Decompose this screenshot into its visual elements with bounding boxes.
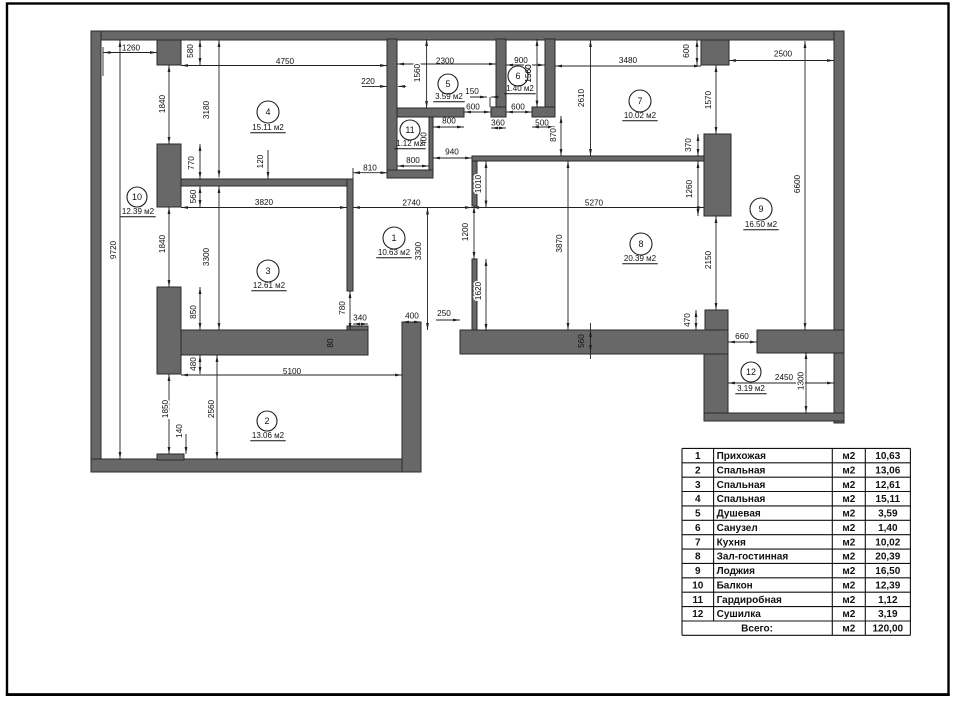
svg-text:2: 2: [264, 416, 269, 426]
svg-text:8: 8: [638, 239, 643, 249]
svg-text:360: 360: [491, 119, 505, 128]
svg-text:340: 340: [353, 314, 367, 323]
svg-text:3300: 3300: [414, 241, 423, 260]
svg-text:1.12 м2: 1.12 м2: [396, 139, 424, 148]
svg-text:м2: м2: [842, 624, 855, 635]
svg-text:580: 580: [186, 44, 195, 58]
svg-text:10.63 м2: 10.63 м2: [378, 248, 411, 257]
svg-text:500: 500: [535, 119, 549, 128]
svg-text:4750: 4750: [276, 57, 295, 66]
svg-text:15,11: 15,11: [876, 494, 901, 505]
svg-text:Душевая: Душевая: [717, 509, 761, 520]
svg-text:Спальная: Спальная: [717, 480, 766, 491]
svg-text:7: 7: [695, 537, 701, 548]
svg-text:Прихожая: Прихожая: [717, 451, 767, 462]
svg-text:5270: 5270: [585, 199, 604, 208]
svg-text:470: 470: [683, 313, 692, 327]
svg-text:3,59: 3,59: [878, 509, 898, 520]
svg-text:370: 370: [684, 138, 693, 152]
svg-text:770: 770: [187, 156, 196, 170]
svg-text:120,00: 120,00: [873, 624, 904, 635]
svg-text:Всего:: Всего:: [741, 624, 773, 635]
svg-text:Балкон: Балкон: [717, 580, 753, 591]
svg-text:1300: 1300: [797, 371, 806, 390]
svg-text:1,12: 1,12: [878, 595, 898, 606]
svg-text:м2: м2: [842, 566, 855, 577]
svg-text:5: 5: [695, 509, 701, 520]
svg-text:9720: 9720: [109, 240, 118, 259]
svg-text:4: 4: [265, 107, 270, 117]
svg-text:м2: м2: [842, 494, 855, 505]
svg-text:3480: 3480: [619, 56, 638, 65]
svg-text:Спальная: Спальная: [717, 494, 766, 505]
svg-text:8: 8: [695, 552, 701, 563]
svg-text:870: 870: [549, 128, 558, 142]
svg-text:800: 800: [442, 117, 456, 126]
svg-text:1.40 м2: 1.40 м2: [506, 84, 534, 93]
svg-text:м2: м2: [842, 609, 855, 620]
svg-text:13.06 м2: 13.06 м2: [252, 431, 285, 440]
svg-text:3300: 3300: [202, 247, 211, 266]
svg-text:м2: м2: [842, 537, 855, 548]
svg-text:Спальная: Спальная: [717, 465, 766, 476]
svg-text:12: 12: [746, 367, 756, 377]
svg-text:850: 850: [189, 305, 198, 319]
svg-text:660: 660: [735, 332, 749, 341]
svg-text:6: 6: [515, 71, 520, 81]
svg-text:12: 12: [692, 609, 704, 620]
svg-text:1200: 1200: [461, 222, 470, 241]
svg-text:Гардиробная: Гардиробная: [717, 594, 782, 606]
svg-text:5100: 5100: [283, 367, 302, 376]
svg-text:1570: 1570: [704, 90, 713, 109]
svg-text:10,63: 10,63: [875, 451, 900, 462]
svg-text:600: 600: [682, 44, 691, 58]
svg-text:600: 600: [466, 103, 480, 112]
svg-text:1560: 1560: [524, 64, 533, 83]
svg-text:3: 3: [695, 480, 701, 491]
svg-text:м2: м2: [842, 480, 855, 491]
svg-text:3180: 3180: [202, 100, 211, 119]
svg-text:2740: 2740: [402, 199, 421, 208]
svg-text:1620: 1620: [474, 281, 483, 300]
svg-text:2450: 2450: [775, 373, 794, 382]
svg-text:2150: 2150: [704, 250, 713, 269]
svg-text:140: 140: [175, 424, 184, 438]
svg-text:400: 400: [405, 312, 419, 321]
svg-text:810: 810: [363, 164, 377, 173]
svg-text:м2: м2: [842, 523, 855, 534]
svg-text:м2: м2: [842, 580, 855, 591]
svg-text:Кухня: Кухня: [717, 537, 746, 548]
svg-text:560: 560: [189, 189, 198, 203]
svg-text:480: 480: [189, 357, 198, 371]
svg-text:м2: м2: [842, 451, 855, 462]
svg-text:20.39 м2: 20.39 м2: [624, 254, 657, 263]
svg-text:1840: 1840: [158, 234, 167, 253]
svg-text:780: 780: [338, 301, 347, 315]
svg-text:6: 6: [695, 523, 701, 534]
svg-text:9: 9: [695, 566, 701, 577]
svg-text:5: 5: [445, 79, 450, 89]
svg-text:1560: 1560: [413, 63, 422, 82]
svg-text:220: 220: [361, 77, 375, 86]
svg-text:900: 900: [514, 56, 528, 65]
svg-text:15.11 м2: 15.11 м2: [252, 123, 284, 132]
svg-text:1260: 1260: [685, 179, 694, 198]
svg-text:1: 1: [695, 451, 701, 462]
svg-text:1,40: 1,40: [878, 523, 898, 534]
svg-text:м2: м2: [842, 552, 855, 563]
svg-text:10,02: 10,02: [875, 537, 900, 548]
svg-text:150: 150: [465, 87, 479, 96]
svg-text:120: 120: [256, 154, 265, 168]
svg-text:560: 560: [577, 334, 586, 348]
svg-text:3,19: 3,19: [878, 609, 898, 620]
svg-text:12,61: 12,61: [875, 480, 900, 491]
svg-text:9: 9: [758, 204, 763, 214]
svg-text:м2: м2: [842, 509, 855, 520]
svg-text:12.61 м2: 12.61 м2: [253, 281, 286, 290]
svg-text:80: 80: [326, 338, 335, 348]
svg-text:20,39: 20,39: [875, 552, 900, 563]
svg-text:Сушилка: Сушилка: [717, 609, 762, 620]
svg-text:4: 4: [695, 494, 701, 505]
svg-text:1260: 1260: [122, 44, 141, 53]
svg-text:1840: 1840: [158, 94, 167, 113]
svg-text:1850: 1850: [161, 399, 170, 418]
svg-text:Санузел: Санузел: [717, 523, 758, 534]
svg-text:3820: 3820: [255, 198, 274, 207]
svg-text:250: 250: [437, 309, 451, 318]
svg-text:2300: 2300: [436, 57, 455, 66]
svg-text:800: 800: [406, 156, 420, 165]
svg-text:7: 7: [637, 96, 642, 106]
svg-text:940: 940: [445, 148, 459, 157]
svg-text:2500: 2500: [774, 50, 793, 59]
svg-text:13,06: 13,06: [875, 465, 900, 476]
svg-text:10.02 м2: 10.02 м2: [624, 111, 657, 120]
svg-text:3870: 3870: [555, 234, 564, 253]
svg-text:м2: м2: [842, 465, 855, 476]
svg-text:16.50 м2: 16.50 м2: [745, 220, 778, 229]
svg-text:10: 10: [692, 580, 704, 591]
svg-text:11: 11: [405, 125, 414, 135]
svg-text:м2: м2: [842, 595, 855, 606]
svg-text:12,39: 12,39: [875, 580, 900, 591]
svg-text:2: 2: [695, 465, 701, 476]
svg-text:1: 1: [391, 233, 396, 243]
svg-text:3: 3: [265, 266, 270, 276]
svg-text:12.39 м2: 12.39 м2: [122, 207, 155, 216]
svg-text:Зал-гостинная: Зал-гостинная: [717, 552, 789, 563]
svg-text:2610: 2610: [577, 88, 586, 107]
svg-text:6600: 6600: [793, 174, 802, 193]
svg-text:Лоджия: Лоджия: [717, 566, 756, 577]
svg-text:10: 10: [132, 192, 142, 202]
svg-text:1010: 1010: [474, 174, 483, 193]
svg-text:2560: 2560: [207, 399, 216, 418]
svg-text:11: 11: [693, 595, 704, 606]
svg-text:16,50: 16,50: [875, 566, 900, 577]
svg-text:600: 600: [511, 103, 525, 112]
svg-text:3.19 м2: 3.19 м2: [737, 384, 765, 393]
svg-text:3.59 м2: 3.59 м2: [435, 92, 463, 101]
